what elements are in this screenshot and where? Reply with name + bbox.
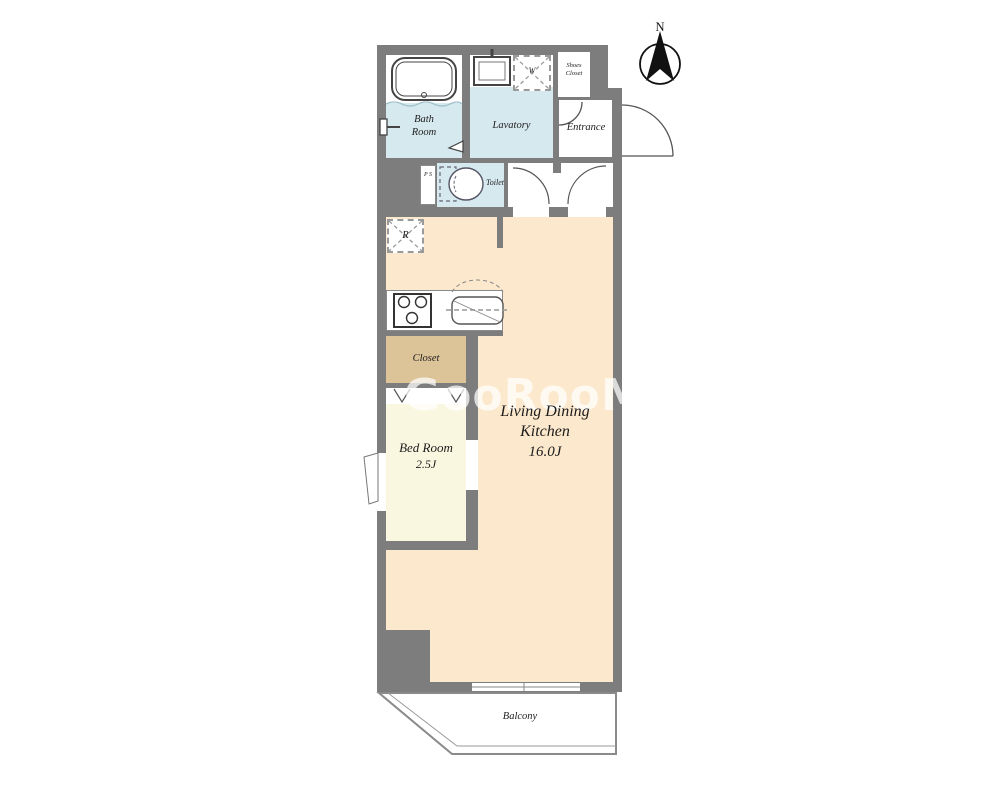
balcony-label: Balcony [470, 710, 570, 723]
hallway-opening-left [513, 207, 549, 217]
kitchen-counter [386, 290, 503, 331]
lavatory-label: Lavatory [470, 119, 553, 132]
north-label: N [648, 20, 672, 35]
bedroom-door-opening [466, 440, 478, 490]
wall-right [613, 217, 622, 692]
wall-left [377, 217, 386, 637]
ldk-label: Living Dining Kitchen 16.0J [489, 402, 601, 462]
hallway-opening-right [568, 207, 606, 217]
wall-bedroom-right [466, 336, 478, 541]
closet-label: Closet [386, 352, 466, 365]
ldk-name: Living Dining Kitchen [500, 403, 589, 440]
north-compass-icon [640, 31, 680, 84]
bedroom-name: Bed Room [399, 440, 453, 455]
bedroom-size: 2.5J [416, 457, 436, 471]
refrigerator-label: R [387, 229, 424, 242]
bedroom-window-opening [377, 453, 386, 511]
balcony-outline-icon [379, 693, 616, 754]
toilet-label: Toilet [480, 178, 510, 188]
bath-room-label: Bath Room [406, 113, 442, 139]
wall-bottom-left-step [377, 630, 430, 692]
bedroom-window-flap-icon [364, 453, 378, 504]
wall-stub-hallway [553, 163, 561, 173]
wall-bedroom-bottom [377, 541, 478, 550]
entrance-label: Entrance [556, 121, 616, 134]
ldk-window-opening [472, 683, 580, 691]
washer-label: W [513, 66, 551, 76]
bedroom-label: Bed Room 2.5J [386, 440, 466, 473]
floor-plan: GooRooM Bath Room Lavatory Shoes Closet … [0, 0, 999, 801]
wall-stub-ldk [497, 217, 503, 248]
shoes-closet-label: Shoes Closet [560, 62, 588, 78]
ldk-floor-lower [430, 630, 613, 682]
bedroom-floor [386, 404, 466, 541]
ldk-size: 16.0J [529, 444, 562, 460]
pipe-space-label: P S [423, 171, 433, 180]
